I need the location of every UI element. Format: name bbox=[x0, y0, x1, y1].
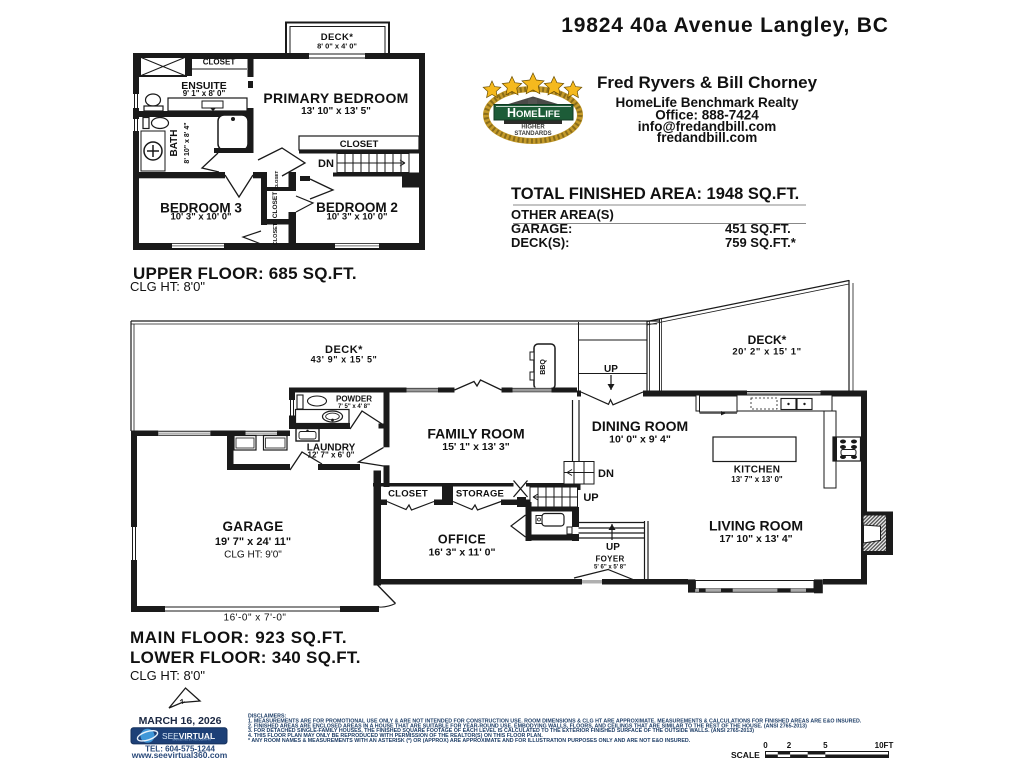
svg-text:OFFICE: OFFICE bbox=[438, 533, 486, 547]
svg-text:2: 2 bbox=[787, 741, 792, 750]
svg-text:UP: UP bbox=[606, 542, 620, 553]
svg-text:12' 7" x 6' 0": 12' 7" x 6' 0" bbox=[308, 451, 355, 460]
svg-text:10' 3" x 10' 0": 10' 3" x 10' 0" bbox=[170, 212, 231, 223]
svg-text:19' 7" x 24' 11": 19' 7" x 24' 11" bbox=[215, 536, 291, 548]
svg-text:POWDER: POWDER bbox=[336, 395, 372, 404]
svg-text:LOWER FLOOR: 340 SQ.FT.: LOWER FLOOR: 340 SQ.FT. bbox=[130, 648, 361, 667]
svg-text:MARCH 16, 2026: MARCH 16, 2026 bbox=[139, 715, 222, 727]
svg-text:DECK*: DECK* bbox=[748, 333, 787, 347]
svg-text:5' 6" x 5' 8": 5' 6" x 5' 8" bbox=[594, 565, 626, 571]
svg-text:OTHER AREA(S): OTHER AREA(S) bbox=[511, 207, 614, 222]
svg-text:GARAGE:: GARAGE: bbox=[511, 221, 572, 236]
svg-text:fredandbill.com: fredandbill.com bbox=[657, 130, 758, 145]
svg-text:* ANY ROOM NAMES & MEASUREMENT: * ANY ROOM NAMES & MEASUREMENTS WITH AN … bbox=[248, 738, 691, 744]
svg-text:KITCHEN: KITCHEN bbox=[734, 465, 781, 476]
svg-text:9' 1" x 8' 0": 9' 1" x 8' 0" bbox=[183, 89, 226, 98]
svg-text:CLOSET: CLOSET bbox=[273, 222, 279, 245]
svg-text:CLOSET: CLOSET bbox=[203, 58, 236, 67]
svg-text:SCALE: SCALE bbox=[731, 750, 760, 760]
svg-text:5: 5 bbox=[823, 741, 828, 750]
svg-text:13' 10" x 13' 5": 13' 10" x 13' 5" bbox=[301, 106, 371, 117]
svg-text:FAMILY ROOM: FAMILY ROOM bbox=[427, 426, 524, 442]
svg-text:CLG HT: 8'0": CLG HT: 8'0" bbox=[130, 279, 205, 294]
svg-text:8' 10" x 8' 4": 8' 10" x 8' 4" bbox=[184, 122, 191, 163]
svg-text:43' 9" x 15' 5": 43' 9" x 15' 5" bbox=[311, 355, 378, 365]
svg-text:CLOSET: CLOSET bbox=[274, 171, 279, 190]
svg-text:CLOSET: CLOSET bbox=[272, 192, 279, 218]
svg-text:www.seevirtual360.com: www.seevirtual360.com bbox=[131, 750, 228, 760]
svg-text:DN: DN bbox=[318, 158, 334, 170]
svg-text:DN: DN bbox=[598, 468, 614, 480]
svg-text:759 SQ.FT.*: 759 SQ.FT.* bbox=[725, 235, 797, 250]
svg-text:STANDARDS: STANDARDS bbox=[514, 131, 551, 137]
svg-text:DECK(S):: DECK(S): bbox=[511, 235, 570, 250]
svg-text:PRIMARY BEDROOM: PRIMARY BEDROOM bbox=[263, 90, 408, 106]
svg-text:10FT: 10FT bbox=[875, 741, 894, 750]
svg-text:20' 2" x 15' 1": 20' 2" x 15' 1" bbox=[732, 347, 801, 358]
svg-text:13' 7" x 13' 0": 13' 7" x 13' 0" bbox=[731, 475, 783, 484]
svg-text:15' 1" x 13' 3": 15' 1" x 13' 3" bbox=[442, 441, 510, 453]
svg-text:STORAGE: STORAGE bbox=[456, 489, 504, 500]
svg-text:16'-0" x 7'-0": 16'-0" x 7'-0" bbox=[224, 613, 287, 624]
svg-text:8' 0" x 4' 0": 8' 0" x 4' 0" bbox=[317, 42, 357, 51]
svg-text:TOTAL FINISHED AREA: 1948 SQ.: TOTAL FINISHED AREA: 1948 SQ.FT. bbox=[511, 185, 799, 203]
svg-text:10' 0" x 9' 4": 10' 0" x 9' 4" bbox=[609, 434, 671, 446]
svg-text:MAIN FLOOR: 923 SQ.FT.: MAIN FLOOR: 923 SQ.FT. bbox=[130, 628, 347, 647]
svg-text:10' 3" x 10' 0": 10' 3" x 10' 0" bbox=[326, 212, 387, 223]
svg-text:HIGHER: HIGHER bbox=[521, 125, 545, 131]
svg-text:CLOSET: CLOSET bbox=[340, 139, 379, 150]
svg-text:BBQ: BBQ bbox=[540, 359, 547, 375]
svg-text:0: 0 bbox=[763, 741, 768, 750]
svg-text:MARKETING & PHOTOGRAPHY: MARKETING & PHOTOGRAPHY bbox=[173, 738, 212, 742]
svg-text:19824 40a Avenue Langley, BC: 19824 40a Avenue Langley, BC bbox=[561, 14, 888, 37]
svg-text:GARAGE: GARAGE bbox=[222, 519, 283, 534]
svg-text:17' 10" x 13' 4": 17' 10" x 13' 4" bbox=[719, 533, 792, 545]
svg-text:UP: UP bbox=[583, 492, 598, 504]
svg-text:CLG HT: 9'0": CLG HT: 9'0" bbox=[224, 550, 282, 561]
svg-text:UP: UP bbox=[604, 364, 618, 375]
svg-text:LIVING ROOM: LIVING ROOM bbox=[709, 518, 803, 534]
svg-text:BATH: BATH bbox=[169, 129, 180, 156]
svg-text:Fred Ryvers & Bill Chorney: Fred Ryvers & Bill Chorney bbox=[597, 73, 818, 92]
svg-text:HOMELIFE: HOMELIFE bbox=[507, 106, 560, 120]
svg-text:CLOSET: CLOSET bbox=[388, 489, 428, 500]
svg-text:16' 3" x 11' 0": 16' 3" x 11' 0" bbox=[429, 547, 496, 559]
svg-text:FOYER: FOYER bbox=[595, 555, 624, 564]
svg-text:DINING ROOM: DINING ROOM bbox=[592, 418, 688, 434]
svg-text:CLG HT: 8'0": CLG HT: 8'0" bbox=[130, 668, 205, 683]
svg-text:451 SQ.FT.: 451 SQ.FT. bbox=[725, 221, 791, 236]
